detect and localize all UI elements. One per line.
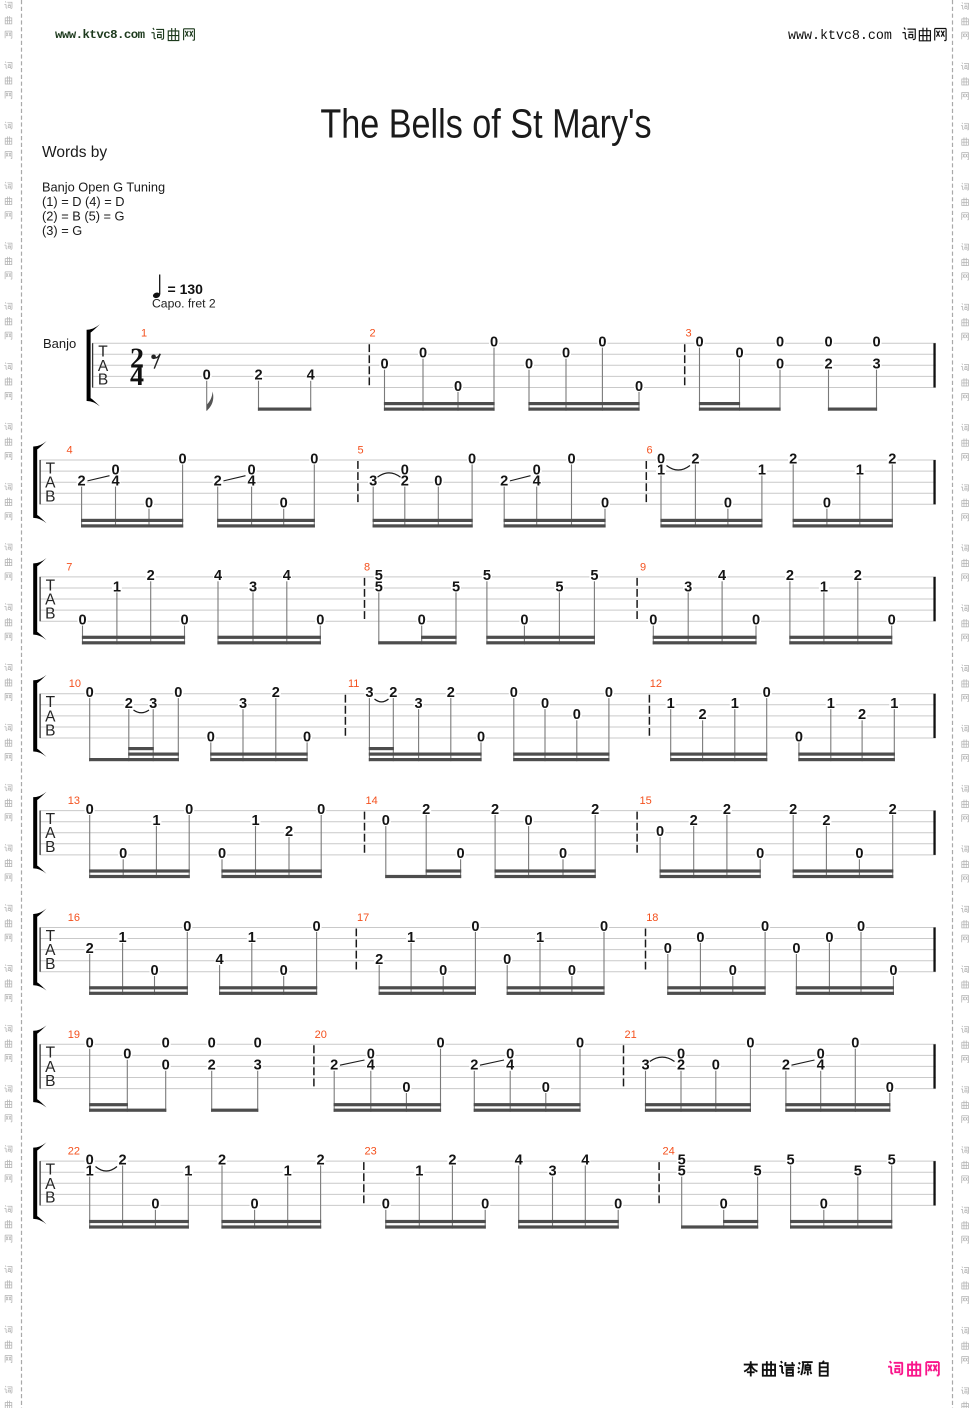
svg-text:0: 0 xyxy=(111,462,119,478)
svg-text:www.ktvc8.com: www.ktvc8.com xyxy=(55,28,145,42)
svg-text:4: 4 xyxy=(67,445,73,457)
svg-text:www.ktvc8.com: www.ktvc8.com xyxy=(788,29,892,44)
svg-text:0: 0 xyxy=(254,1036,262,1052)
svg-text:20: 20 xyxy=(315,1029,327,1041)
svg-text:0: 0 xyxy=(824,335,832,351)
svg-text:23: 23 xyxy=(365,1146,377,1158)
svg-text:2: 2 xyxy=(370,328,376,340)
svg-text:1: 1 xyxy=(141,328,147,340)
svg-text:0: 0 xyxy=(677,1047,685,1063)
svg-text:B: B xyxy=(45,489,55,506)
svg-text:0: 0 xyxy=(533,462,541,478)
svg-text:Words by: Words by xyxy=(42,144,107,161)
svg-text:0: 0 xyxy=(248,462,256,478)
svg-text:Banjo Open G Tuning: Banjo Open G Tuning xyxy=(42,180,165,195)
svg-text:6: 6 xyxy=(647,445,653,457)
svg-text:14: 14 xyxy=(366,795,378,807)
svg-text:24: 24 xyxy=(663,1146,675,1158)
svg-text:18: 18 xyxy=(646,912,658,924)
svg-text:22: 22 xyxy=(68,1146,80,1158)
svg-text:0: 0 xyxy=(872,335,880,351)
svg-text:(2) = B (5) = G: (2) = B (5) = G xyxy=(42,209,125,224)
svg-text:B: B xyxy=(45,839,55,856)
svg-text:B: B xyxy=(45,1190,55,1207)
svg-text:5: 5 xyxy=(358,445,364,457)
svg-text:0: 0 xyxy=(817,1047,825,1063)
svg-text:10: 10 xyxy=(69,678,81,690)
svg-text:0: 0 xyxy=(506,1047,514,1063)
svg-text:15: 15 xyxy=(640,795,652,807)
svg-text:17: 17 xyxy=(357,912,369,924)
svg-text:= 130: = 130 xyxy=(168,281,204,297)
svg-text:0: 0 xyxy=(776,335,784,351)
svg-text:12: 12 xyxy=(650,678,662,690)
svg-text:8: 8 xyxy=(364,561,370,573)
svg-text:13: 13 xyxy=(68,795,80,807)
svg-text:0: 0 xyxy=(208,1036,216,1052)
svg-text:9: 9 xyxy=(640,561,646,573)
svg-text:0: 0 xyxy=(367,1047,375,1063)
svg-text:16: 16 xyxy=(68,912,80,924)
svg-text:4: 4 xyxy=(130,361,144,392)
svg-text:B: B xyxy=(98,372,108,389)
svg-text:Capo. fret 2: Capo. fret 2 xyxy=(152,297,216,311)
svg-text:B: B xyxy=(45,605,55,622)
svg-text:The Bells of St Mary's: The Bells of St Mary's xyxy=(320,101,651,146)
svg-text:Banjo: Banjo xyxy=(43,336,76,351)
svg-text:7: 7 xyxy=(66,561,72,573)
svg-text:(3) = G: (3) = G xyxy=(42,223,82,238)
svg-text:B: B xyxy=(45,956,55,973)
svg-text:11: 11 xyxy=(348,678,359,690)
svg-text:0: 0 xyxy=(162,1036,170,1052)
svg-text:3: 3 xyxy=(686,328,692,340)
svg-text:19: 19 xyxy=(68,1029,80,1041)
svg-text:(1) = D (4) = D: (1) = D (4) = D xyxy=(42,194,125,209)
svg-text:B: B xyxy=(45,1073,55,1090)
svg-text:0: 0 xyxy=(401,462,409,478)
svg-text:B: B xyxy=(45,722,55,739)
svg-text:21: 21 xyxy=(625,1029,637,1041)
